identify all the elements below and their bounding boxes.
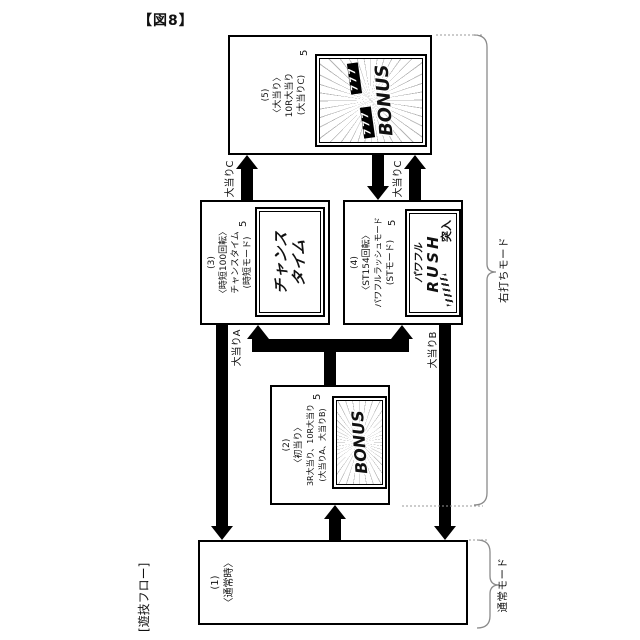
arrow-jackpot-to-rush — [367, 155, 389, 200]
state-box-normal: (1) 〈通常時〉 — [198, 540, 468, 625]
bracket-label-normal-mode: 通常モード — [495, 545, 510, 625]
arrow-label-jackpot-c: 大当りC — [221, 151, 236, 207]
chance-time-logo-line1: チャンス — [272, 229, 290, 295]
bracket-label-right-strike-mode: 右打ちモード — [496, 230, 511, 310]
state-title: 〈通常時〉 — [223, 542, 237, 623]
state-number: (1) — [209, 542, 223, 623]
state-box-chance-time: (3) 〈時短100回転〉 チャンスタイム (時短モード) チャンス タイム — [200, 200, 330, 325]
state-subtitle: 3R大当り、10R大当り — [305, 387, 317, 503]
state-number: (3) — [206, 202, 218, 323]
arrow-chancetime-to-jackpot — [236, 155, 258, 200]
state-subtitle: パワフルラッシュモード — [373, 202, 385, 323]
state-title: 〈ST154回転〉 — [361, 202, 373, 323]
powerful-rush-graphic: パワフル RUSH 突入 — [409, 213, 457, 313]
state-title: 〈時短100回転〉 — [218, 202, 230, 323]
state-number: (2) — [281, 387, 293, 503]
state-box-jackpot: (5) 〈大当り〉 10R大当り (大当りC) 777 777 BONUS — [228, 35, 432, 155]
bonus-logo: BONUS — [348, 410, 371, 475]
arrow-firsthit-fork — [247, 325, 413, 385]
chance-time-logo-line2: タイム — [290, 237, 308, 287]
arrow-normal-to-firsthit — [324, 505, 346, 540]
arrow-label-jackpot-a: 大当りA — [228, 320, 243, 376]
lcd-screen-jackpot: 777 777 BONUS — [315, 54, 427, 147]
patent-figure-page: 【図8】 — [0, 0, 640, 640]
state-subtitle: 10R大当り — [284, 37, 296, 153]
rush-logo-line2: RUSH — [425, 233, 441, 292]
state-number: (5) — [260, 37, 272, 153]
arrow-rush-to-jackpot — [404, 155, 426, 200]
bonus-burst-graphic: BONUS — [336, 400, 383, 485]
reel-777: 777 — [359, 107, 374, 139]
ref-numeral-5: 5 — [387, 220, 398, 226]
arrow-label-jackpot-c: 大当りC — [389, 151, 404, 207]
rush-logo-line1: パワフル — [414, 243, 425, 283]
lcd-screen-chance-time: チャンス タイム — [255, 207, 325, 317]
reel-777: 777 — [346, 62, 361, 94]
bonus-burst-graphic: 777 777 BONUS — [319, 58, 423, 143]
state-subtitle: (大当りA、大当りB) — [317, 387, 329, 503]
brace-right-strike-mode — [474, 35, 496, 505]
ref-numeral-5: 5 — [238, 221, 249, 227]
state-number: (4) — [349, 202, 361, 323]
state-box-first-hit: (2) 〈初当り〉 3R大当り、10R大当り (大当りA、大当りB) BONUS — [270, 385, 390, 505]
arrow-label-jackpot-b: 大当りB — [424, 322, 439, 378]
figure-number: 【図8】 — [138, 10, 194, 30]
flow-diagram: (1) 〈通常時〉 (2) 〈初当り〉 3R大当り、10R大当り (大当りA、大… — [0, 0, 640, 640]
lcd-screen-first-hit: BONUS — [332, 396, 387, 489]
ref-numeral-5: 5 — [299, 50, 310, 56]
chance-time-graphic: チャンス タイム — [259, 211, 321, 313]
state-title: 〈大当り〉 — [272, 37, 284, 153]
flow-caption: [遊技フロー] — [135, 563, 152, 632]
state-title: 〈初当り〉 — [293, 387, 305, 503]
ref-numeral-5: 5 — [312, 394, 323, 400]
lcd-screen-powerful-rush: パワフル RUSH 突入 — [405, 209, 461, 317]
state-box-powerful-rush: (4) 〈ST154回転〉 パワフルラッシュモード (STモード) パワフル R… — [343, 200, 463, 325]
rush-entry-text: 突入 — [441, 220, 453, 242]
bonus-logo: BONUS — [371, 64, 397, 137]
speed-stripes-graphic — [439, 274, 454, 307]
